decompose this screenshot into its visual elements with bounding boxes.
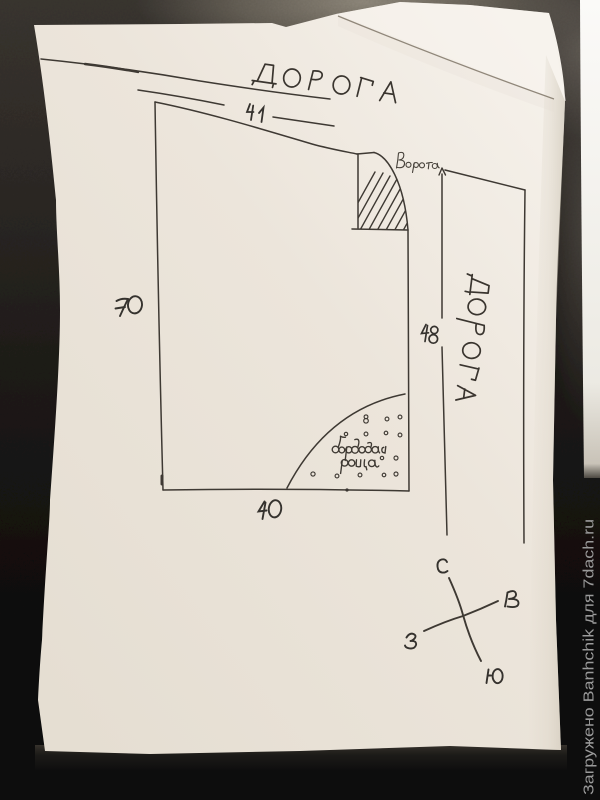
svg-text:Загружено Banhchik для 7dach.r: Загружено Banhchik для 7dach.ru [582,519,598,795]
